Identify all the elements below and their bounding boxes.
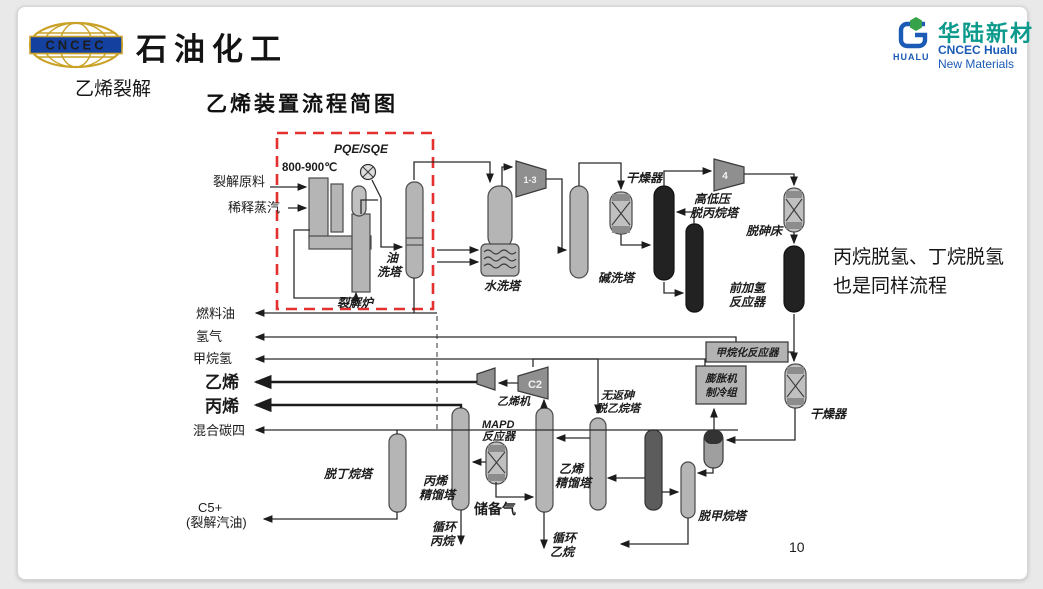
label-ethylene-compressor: 乙烯机 (497, 395, 531, 408)
label-recycle-propane-1: 循环 (432, 520, 458, 534)
label-cracking-furnace: 裂解炉 (337, 296, 375, 310)
label-mapd-1: MAPD (482, 419, 514, 431)
label-c5-1: C5+ (198, 500, 222, 515)
ethylene-fractionator-column (536, 408, 553, 512)
label-dryer-1: 干燥器 (626, 171, 664, 185)
steam-drum (352, 186, 366, 216)
methanation-reactor-box: 甲烷化反应器 (706, 342, 788, 362)
label-c3-splitter-1: 丙烯 (423, 474, 449, 488)
svg-text:C2: C2 (528, 379, 542, 391)
label-ethylene: 乙烯 (205, 372, 239, 392)
label-c2-splitter-1: 乙烯 (559, 462, 585, 476)
dryer-2 (785, 364, 806, 408)
svg-text:膨胀机: 膨胀机 (704, 372, 738, 385)
debutanizer-column (389, 434, 406, 512)
label-methane-h2: 甲烷氢 (193, 351, 232, 366)
stripper-column (681, 462, 695, 518)
label-debutanizer: 脱丁烷塔 (323, 467, 374, 481)
label-c5-2: (裂解汽油) (186, 515, 247, 530)
label-mixed-c4: 混合碳四 (193, 423, 245, 438)
svg-text:4: 4 (722, 171, 728, 182)
svg-text:制冷组: 制冷组 (705, 386, 738, 399)
label-demethanizer: 脱甲烷塔 (697, 509, 748, 523)
label-fuel-oil: 燃料油 (196, 306, 235, 321)
arsenic-removal-bed (784, 188, 804, 232)
label-caustic-wash: 碱洗塔 (598, 271, 636, 285)
label-pqe-sqe: PQE/SQE (334, 142, 389, 156)
deethanizer-column (590, 418, 606, 510)
label-dryer-2: 干燥器 (810, 407, 848, 421)
cracked-gas-compressor-4: 4 (714, 159, 744, 191)
svg-text:1-3: 1-3 (523, 175, 536, 185)
depropanizer-hp-column (654, 186, 674, 280)
svg-text:甲烷化反应器: 甲烷化反应器 (716, 346, 780, 359)
label-recycle-ethane-1: 循环 (552, 531, 578, 545)
label-dilution-steam: 稀释蒸汽 (228, 200, 280, 215)
caustic-wash-tower (570, 186, 588, 278)
label-recycle-propane-2: 丙烷 (430, 534, 456, 548)
label-depropanizer-1: 高低压 (694, 192, 733, 206)
process-flow-diagram: 1-3 4 甲烷化反应器 膨胀机 制冷组 (0, 0, 1043, 589)
label-hydrogen: 氢气 (196, 329, 222, 344)
label-arsenic-bed: 脱砷床 (745, 224, 784, 238)
label-water-wash: 水洗塔 (484, 279, 522, 293)
label-oil-wash-1: 油 (386, 251, 400, 265)
quench-exchanger (361, 165, 376, 180)
label-deethanizer-2: 脱乙烷塔 (595, 402, 642, 415)
label-depropanizer-2: 脱丙烷塔 (689, 206, 740, 220)
front-hydrogenation-reactor (784, 246, 804, 312)
label-oil-wash-2: 洗塔 (377, 265, 403, 279)
demethanizer-column (645, 430, 662, 510)
mapd-reactor (486, 442, 507, 484)
cracked-gas-compressor-1-3: 1-3 (516, 161, 546, 197)
label-mapd-2: 反应器 (482, 430, 517, 443)
cracking-furnace (309, 178, 371, 292)
label-hydrogenation-1: 前加氢 (729, 281, 767, 295)
label-c3-splitter-2: 精馏塔 (419, 488, 457, 502)
label-c2-splitter-2: 精馏塔 (555, 476, 593, 490)
depropanizer-lp-column (686, 224, 703, 312)
dryer-1 (610, 192, 632, 234)
water-wash-tower (481, 186, 519, 276)
label-reserve-gas: 储备气 (473, 501, 516, 517)
oil-wash-tower (406, 182, 423, 278)
label-propylene: 丙烯 (205, 396, 239, 416)
label-feed: 裂解原料 (213, 174, 265, 189)
temperature-annotation: 800-900℃ (282, 161, 337, 174)
page-number: 10 (789, 539, 805, 555)
label-hydrogenation-2: 反应器 (729, 295, 767, 309)
label-deethanizer-1: 无返砷 (600, 389, 636, 402)
label-recycle-ethane-2: 乙烷 (550, 545, 576, 559)
cold-box-drum (704, 430, 723, 468)
expander-refrigeration-box: 膨胀机 制冷组 (696, 366, 746, 404)
